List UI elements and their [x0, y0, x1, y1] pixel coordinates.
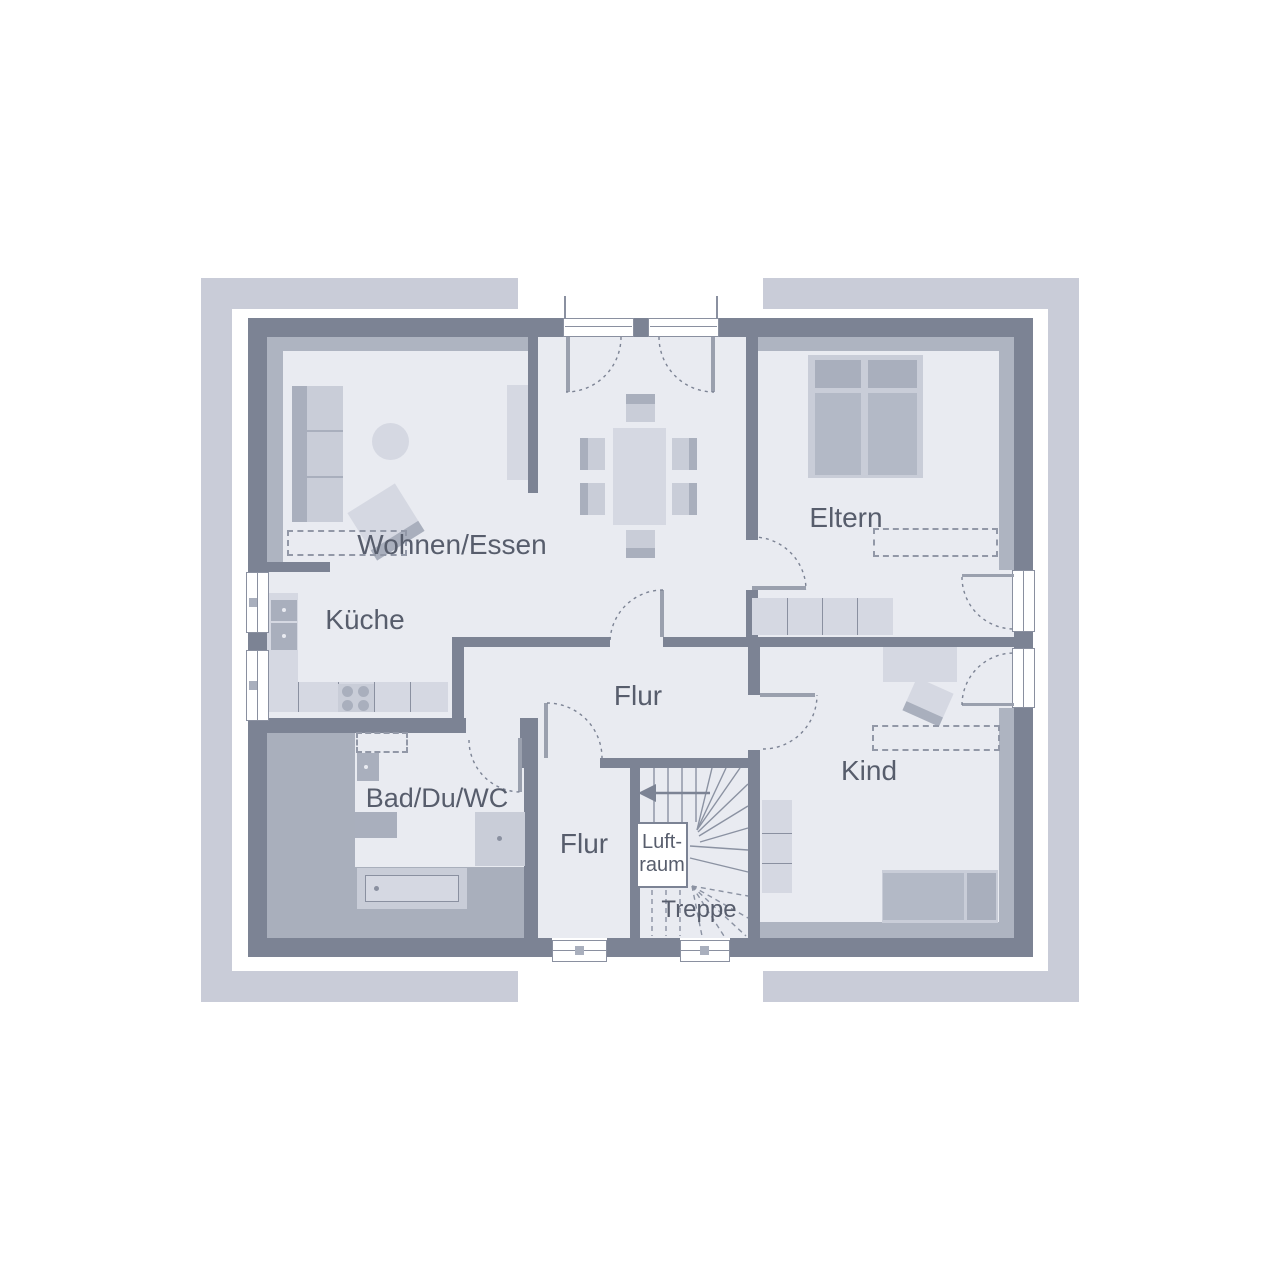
dining-chair-left1-back	[580, 438, 588, 470]
child-bed-pillow	[967, 873, 996, 920]
wall-top-1	[248, 318, 565, 337]
wall-top-2	[717, 318, 1033, 337]
dining-chair-top-back	[626, 394, 655, 404]
counter-divider-4	[410, 682, 411, 712]
kneewall-child-right	[999, 708, 1014, 922]
child-desk	[883, 647, 957, 682]
door-leaf-dining-hall	[660, 590, 664, 637]
counter-divider-1	[298, 682, 299, 712]
bath-sink-drain	[364, 765, 368, 769]
dining-chair-right2-back	[689, 483, 697, 515]
window-child-right-glass	[1023, 649, 1024, 707]
coffee-table-round	[372, 423, 409, 460]
kneewall-living-top	[267, 337, 528, 351]
bath-sink	[357, 753, 379, 781]
wall-right-2	[1014, 632, 1033, 648]
sofa-cushion-line-2	[307, 476, 343, 478]
wall-bath-right	[524, 748, 538, 938]
label-stairs: Treppe	[639, 896, 759, 924]
window-terrace-door-left	[563, 318, 634, 337]
kneewall-parents-right	[999, 351, 1014, 570]
dining-chair-top-seat	[626, 404, 655, 422]
bathtub-drain	[374, 886, 379, 891]
wall-bottom-1	[248, 938, 552, 957]
label-living: Wohnen/Essen	[332, 529, 572, 561]
parents-bed-pillow-left	[815, 360, 861, 388]
window-parents-right-glass	[1023, 571, 1024, 631]
parents-bed-pillow-right	[868, 360, 917, 388]
terrace-jamb-right	[716, 296, 718, 318]
window-kitchen-2-handle	[249, 681, 257, 690]
label-luftraum: Luft- raum	[638, 831, 686, 877]
sofa-seat	[307, 386, 343, 522]
door-leaf-hall-small	[544, 703, 548, 758]
window-stair-bottom-handle	[700, 946, 709, 955]
roof-outline-left	[201, 278, 232, 1002]
roof-outline-right	[1048, 278, 1079, 1002]
parents-sideboard-div-3	[857, 598, 858, 635]
dining-chair-right2-seat	[672, 483, 689, 515]
dining-chair-left2-seat	[588, 483, 605, 515]
roof-outline-bottom-left	[201, 971, 518, 1002]
wall-hall-child	[748, 647, 760, 695]
child-wardrobe-planned	[872, 725, 1000, 751]
roof-outline-bottom-right	[763, 971, 1079, 1002]
sofa-cushion-line-1	[307, 430, 343, 432]
wall-hall-top-2	[663, 637, 1014, 647]
label-hall-small: Flur	[538, 828, 630, 860]
stove-burner-1	[342, 686, 353, 697]
door-leaf-terrace-right	[711, 337, 715, 392]
child-bed-mattress	[883, 873, 964, 920]
bath-shower-drain	[497, 836, 502, 841]
child-shelf	[762, 800, 792, 893]
living-cupboard	[507, 385, 528, 480]
wall-parents-left-1	[746, 337, 758, 540]
dining-table	[613, 428, 666, 525]
label-child: Kind	[809, 755, 929, 787]
window-leaf-parents	[962, 574, 1014, 577]
child-shelf-div-2	[762, 863, 792, 864]
wall-right-1	[1014, 318, 1033, 570]
child-shelf-div-1	[762, 833, 792, 834]
dining-chair-bottom-back	[626, 548, 655, 558]
door-leaf-terrace-left	[566, 337, 570, 392]
wall-living-dining-stub	[528, 337, 538, 493]
terrace-jamb-left	[564, 296, 566, 318]
bathtub-inner	[365, 875, 459, 902]
label-hall-main: Flur	[578, 680, 698, 712]
wall-hall-top-1	[452, 637, 610, 647]
wall-stair-top	[600, 758, 748, 768]
wall-bottom-3	[730, 938, 1033, 957]
parents-sideboard-div-2	[822, 598, 823, 635]
kneewall-living-left	[267, 351, 283, 562]
roof-outline-top-right	[763, 278, 1079, 309]
window-leaf-child	[962, 703, 1014, 706]
stove-burner-3	[342, 700, 353, 711]
sofa-backrest	[292, 386, 307, 522]
wall-bath-top	[267, 718, 466, 733]
label-bath: Bad/Du/WC	[337, 783, 537, 814]
wall-left-2	[248, 633, 267, 650]
label-parents: Eltern	[776, 502, 916, 534]
window-hall-bottom-handle	[575, 946, 584, 955]
terrace-door-right-glass	[650, 326, 717, 327]
dining-chair-right1-seat	[672, 438, 689, 470]
terrace-door-left-glass	[565, 326, 632, 327]
counter-divider-3	[374, 682, 375, 712]
parents-sideboard-div-1	[787, 598, 788, 635]
label-kitchen: Küche	[295, 604, 435, 636]
bath-toilet	[355, 812, 397, 838]
dining-chair-left1-seat	[588, 438, 605, 470]
wall-right-3	[1014, 708, 1033, 957]
parents-bed-mattress-right	[868, 393, 917, 475]
bath-low-ceiling-zone-left	[267, 733, 355, 938]
parents-bed-mattress-left	[815, 393, 861, 475]
sink-drain-1	[282, 608, 286, 612]
wall-bottom-2	[607, 938, 680, 957]
dining-chair-bottom-seat	[626, 530, 655, 548]
window-kitchen-2-glass	[257, 651, 258, 720]
stove-burner-4	[358, 700, 369, 711]
window-kitchen-1-handle	[249, 598, 257, 607]
sink-drain-2	[282, 634, 286, 638]
label-luftraum-line1: Luft-	[642, 831, 682, 853]
stove-burner-2	[358, 686, 369, 697]
window-kitchen-1-glass	[257, 573, 258, 632]
kneewall-child-bottom	[760, 922, 1014, 938]
bath-cupboard-planned	[356, 732, 408, 753]
label-luftraum-line2: raum	[639, 854, 685, 876]
kneewall-parents-top	[758, 337, 1014, 351]
floor-plan-canvas: Wohnen/Essen Küche Eltern Flur Flur Bad/…	[0, 0, 1280, 1280]
wall-left-3	[248, 721, 267, 957]
wall-kitchen-short	[267, 562, 330, 572]
wall-left-1	[248, 318, 267, 572]
door-leaf-parents	[752, 586, 806, 590]
roof-outline-top-left	[201, 278, 518, 309]
door-leaf-child	[760, 693, 815, 697]
dining-chair-right1-back	[689, 438, 697, 470]
window-terrace-door-right	[648, 318, 719, 337]
dining-chair-left2-back	[580, 483, 588, 515]
